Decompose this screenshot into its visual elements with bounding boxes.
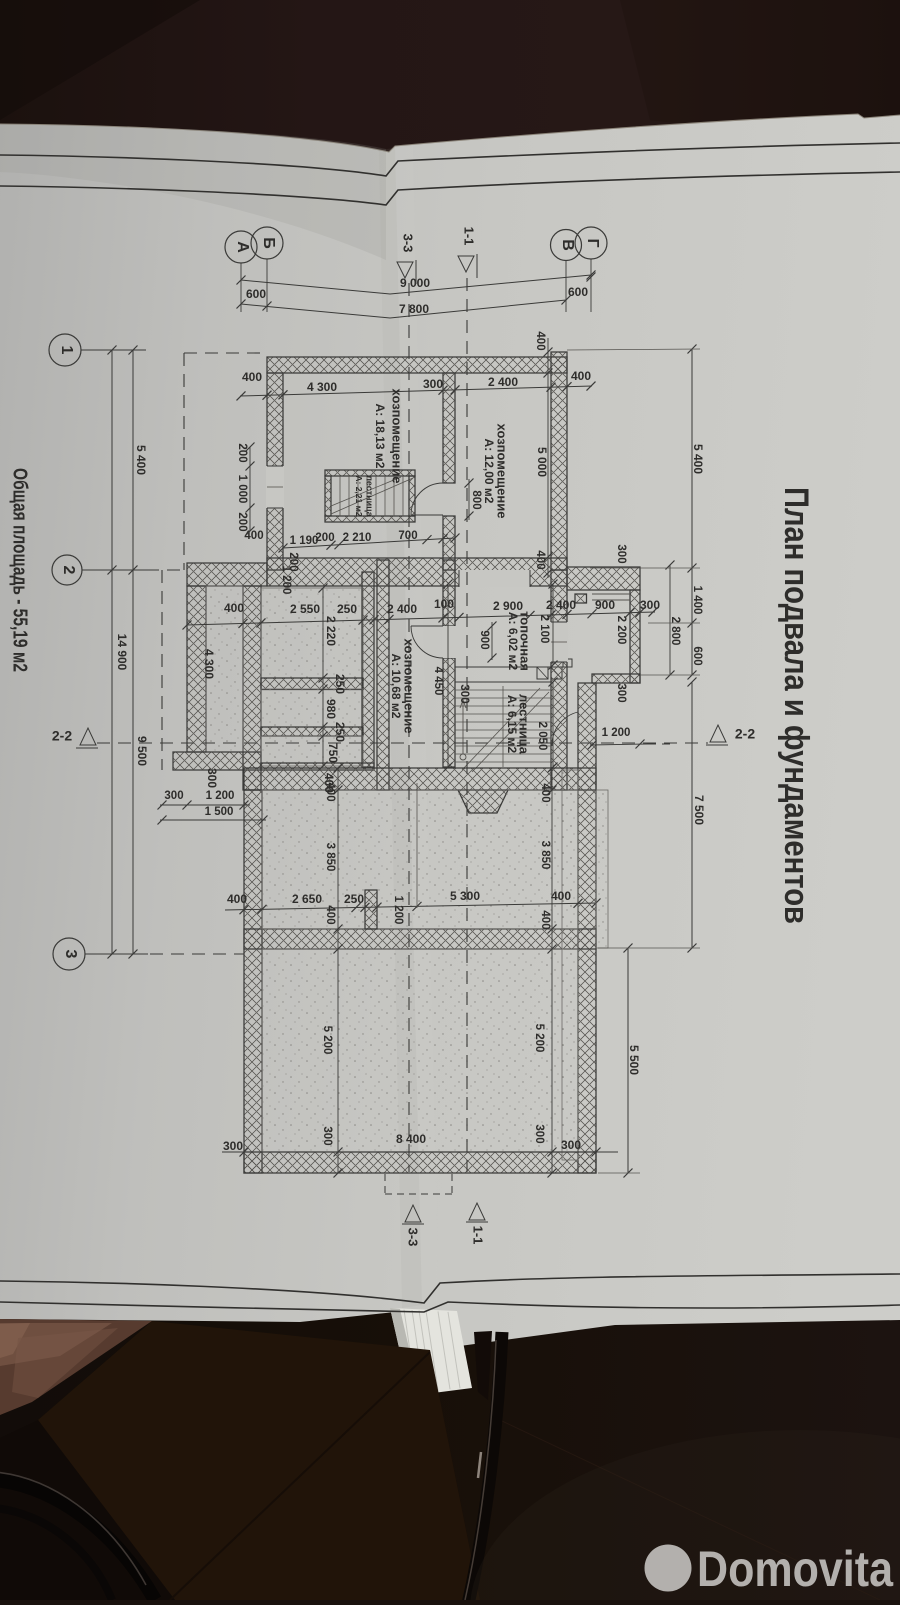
svg-text:5 200: 5 200 [533,1024,545,1053]
svg-text:200: 200 [315,532,334,544]
svg-text:4 300: 4 300 [307,380,337,394]
svg-text:3-3: 3-3 [401,234,416,253]
svg-text:300: 300 [164,790,183,802]
svg-text:4 450: 4 450 [432,667,444,696]
svg-text:Г: Г [584,238,601,247]
svg-text:1 200: 1 200 [206,790,235,802]
svg-text:2 400: 2 400 [546,598,576,612]
svg-text:400: 400 [244,530,263,542]
svg-text:5 000: 5 000 [535,447,549,477]
svg-text:лестница: лестница [365,475,375,518]
svg-text:А: 2,21 м2: А: 2,21 м2 [354,475,364,517]
svg-text:400: 400 [539,910,551,929]
svg-text:1-1: 1-1 [462,227,477,246]
svg-text:2 400: 2 400 [387,602,417,616]
svg-text:1 200: 1 200 [602,727,631,739]
svg-text:300: 300 [615,683,627,702]
svg-text:А: 6,02 м2: А: 6,02 м2 [506,612,520,671]
svg-text:4 300: 4 300 [202,649,216,679]
svg-text:300: 300 [561,1138,581,1152]
svg-text:А: 6,15 м2: А: 6,15 м2 [505,695,519,754]
svg-text:300: 300 [458,684,470,703]
svg-text:2 210: 2 210 [343,532,372,544]
svg-text:2 650: 2 650 [292,892,322,906]
svg-text:400: 400 [227,892,247,906]
svg-text:2-2: 2-2 [52,728,72,744]
svg-text:А: А [234,241,251,253]
svg-text:250: 250 [333,674,347,694]
svg-text:250: 250 [344,892,364,906]
svg-text:900: 900 [478,630,490,649]
svg-text:2 400: 2 400 [488,375,518,389]
svg-text:2 050: 2 050 [536,722,548,751]
svg-text:2 100: 2 100 [538,615,550,644]
svg-text:400: 400 [539,783,551,802]
svg-text:700: 700 [398,530,417,542]
svg-text:В: В [559,239,576,251]
svg-text:400: 400 [224,601,244,615]
svg-text:2 800: 2 800 [669,617,681,646]
svg-text:250: 250 [337,602,357,616]
svg-text:5 400: 5 400 [691,444,705,474]
svg-text:А: 12,00 м2: А: 12,00 м2 [482,439,496,504]
svg-text:2 550: 2 550 [290,602,320,616]
svg-text:1 190: 1 190 [290,535,319,547]
svg-text:300: 300 [223,1139,243,1153]
svg-text:400: 400 [242,370,262,384]
svg-text:14 900: 14 900 [115,634,129,671]
svg-text:8 400: 8 400 [396,1132,426,1146]
svg-text:200: 200 [236,443,248,462]
svg-text:400: 400 [534,331,546,350]
svg-text:600: 600 [568,285,588,299]
svg-text:300: 300 [615,544,627,563]
svg-text:900: 900 [595,598,615,612]
svg-text:7 800: 7 800 [399,302,429,316]
svg-text:А: 10,68 м2: А: 10,68 м2 [389,654,403,719]
svg-text:600: 600 [691,646,703,665]
svg-text:2-2: 2-2 [735,726,755,742]
svg-text:9 000: 9 000 [400,276,430,290]
svg-text:300: 300 [321,1126,333,1145]
svg-text:400: 400 [324,782,336,801]
svg-text:400: 400 [324,905,336,924]
svg-text:600: 600 [246,287,266,301]
svg-text:750: 750 [326,743,340,763]
svg-text:3: 3 [62,950,79,959]
svg-text:Б: Б [260,237,277,249]
svg-text:План подвала и фундаментов: План подвала и фундаментов [777,487,815,924]
svg-text:200: 200 [287,552,299,571]
svg-text:Domovita: Domovita [697,1541,894,1597]
svg-text:2 220: 2 220 [324,616,338,646]
svg-text:5 400: 5 400 [134,445,148,475]
svg-text:3 850: 3 850 [324,843,336,872]
svg-text:1: 1 [58,346,75,355]
svg-text:3 850: 3 850 [539,841,551,870]
svg-text:А: 18,13 м2: А: 18,13 м2 [373,404,387,469]
svg-text:400: 400 [571,369,591,383]
svg-text:300: 300 [205,768,219,788]
svg-text:2 200: 2 200 [615,616,627,645]
svg-text:5 300: 5 300 [450,889,480,903]
svg-text:300: 300 [423,377,443,391]
svg-text:980: 980 [324,699,338,719]
svg-text:1-1: 1-1 [471,1226,486,1245]
svg-text:7 500: 7 500 [692,795,706,825]
svg-text:400: 400 [551,889,571,903]
svg-text:1 400: 1 400 [691,586,703,615]
svg-text:3-3: 3-3 [406,1228,421,1247]
svg-text:800: 800 [470,490,482,509]
svg-text:5 500: 5 500 [627,1045,641,1075]
svg-text:хозпомещение: хозпомещение [390,389,405,484]
svg-text:300: 300 [640,598,660,612]
svg-text:100: 100 [434,597,454,611]
svg-text:250: 250 [333,722,347,742]
svg-text:5 200: 5 200 [321,1026,333,1055]
svg-text:200: 200 [236,512,248,531]
svg-text:Общая площадь - 55,19 м2: Общая площадь - 55,19 м2 [9,468,32,672]
svg-text:1 500: 1 500 [205,806,234,818]
svg-text:2: 2 [60,566,77,575]
svg-text:1 000: 1 000 [236,475,248,504]
svg-text:1 200: 1 200 [392,896,404,925]
svg-text:300: 300 [533,1124,545,1143]
svg-text:400: 400 [534,550,546,569]
svg-text:9 500: 9 500 [135,736,149,766]
